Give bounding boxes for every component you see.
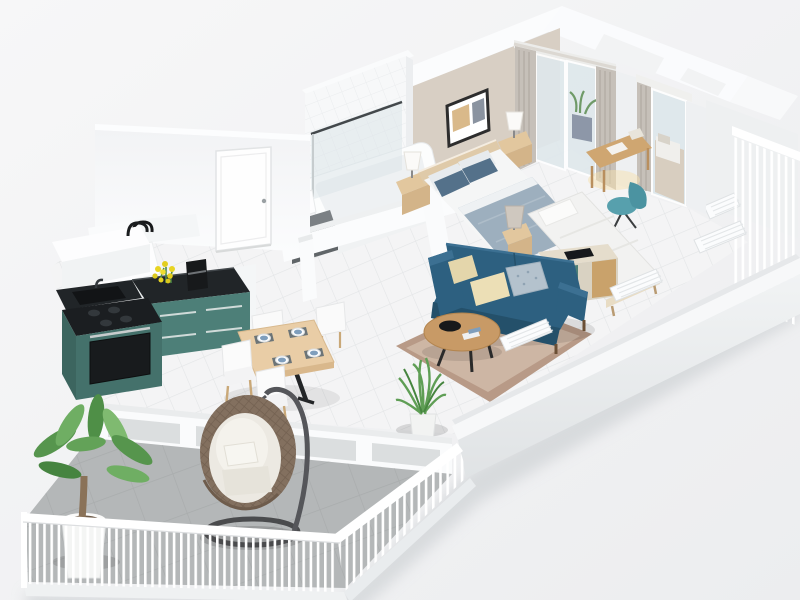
table-top bbox=[424, 313, 500, 351]
scene bbox=[0, 0, 800, 600]
seat-cushion bbox=[222, 466, 272, 496]
coffee-machine bbox=[186, 259, 208, 291]
entry-door bbox=[216, 147, 271, 252]
door-handle bbox=[262, 199, 266, 203]
glass-pane bbox=[536, 54, 565, 170]
table-lamp bbox=[505, 206, 524, 228]
black-bowl bbox=[439, 321, 461, 332]
wall-segment bbox=[686, 101, 706, 214]
table-lamp bbox=[404, 152, 421, 170]
floorplan-3d-render bbox=[0, 0, 800, 600]
railing-post bbox=[21, 512, 27, 588]
cooktop-oven bbox=[62, 298, 162, 400]
small-pillow bbox=[224, 442, 258, 466]
table-lamp bbox=[506, 112, 523, 130]
